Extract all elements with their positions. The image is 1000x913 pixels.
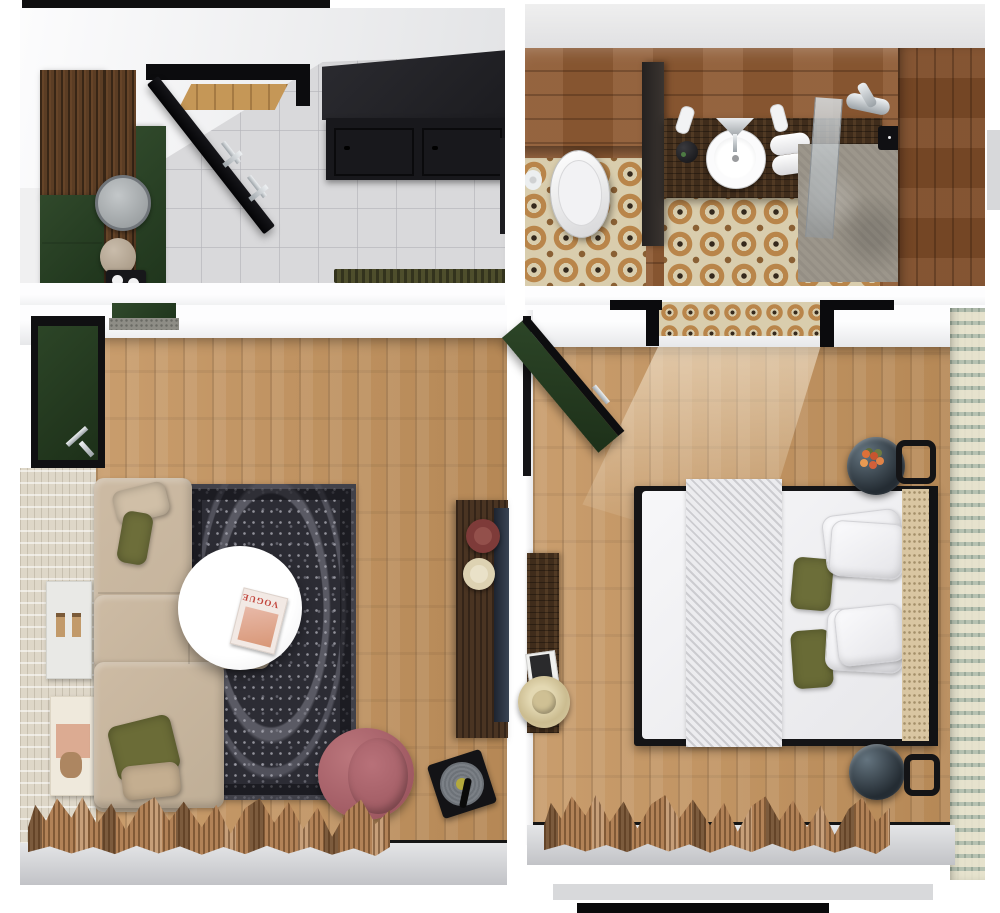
kitchen-room: [0, 0, 510, 313]
headboard-frame-edge: [929, 486, 938, 746]
nightstand-bottom: [849, 744, 905, 800]
art-figure: [56, 613, 65, 637]
partition-wall: [642, 62, 664, 246]
wall-sconce: [896, 440, 936, 484]
bathroom-top-wall: [515, 4, 985, 50]
cabinet-seam: [42, 242, 102, 244]
wall-art-frame: [46, 581, 92, 679]
sink-drain: [732, 155, 739, 162]
entry-doorway-floor: [178, 84, 288, 110]
right-margin-edge: [987, 130, 1000, 210]
white-pillow: [828, 519, 906, 580]
cabinet-door-panel: [422, 128, 502, 176]
sage-wallpaper-wall: [950, 308, 985, 880]
decor-plate-maroon-inner: [474, 527, 492, 545]
cabinet-knob: [432, 146, 438, 150]
cabinet-knob: [344, 146, 350, 150]
entry-wardrobe: [40, 70, 104, 197]
bathroom-doorway-tile: [659, 302, 820, 336]
sofa-seam: [98, 592, 188, 594]
knit-throw: [686, 479, 782, 747]
cane-headboard: [902, 489, 930, 741]
faucet-spout: [733, 134, 737, 152]
bottom-black-edge: [577, 903, 829, 913]
panel-dot: [888, 136, 891, 139]
entry-console-stone-top: [109, 318, 179, 330]
straw-hat-crown: [532, 690, 556, 714]
entry-door-jamb: [296, 64, 310, 106]
black-jar: [676, 141, 698, 163]
wall-sconce: [904, 754, 940, 796]
mauve-armchair-seat: [348, 738, 408, 814]
doormat: [334, 269, 512, 283]
jar-accent-dot: [681, 152, 686, 157]
entry-door-lintel: [146, 64, 308, 80]
toilet-paper-roll: [524, 170, 542, 190]
flower-bouquet: [862, 450, 870, 458]
doorway-frame-jamb: [646, 300, 659, 346]
round-mirror: [95, 175, 151, 231]
lower-wall-band: [553, 884, 933, 900]
window-sill: [20, 843, 507, 885]
cabinet-door-panel: [334, 128, 414, 176]
kitchen-top-black-edge: [22, 0, 330, 8]
art-figure: [72, 613, 81, 637]
doorway-frame-bar: [832, 300, 894, 310]
art-abstract-tan: [60, 752, 82, 778]
decor-plate-cream-inner: [470, 565, 488, 583]
white-pillow: [833, 603, 907, 668]
tan-pillow: [120, 761, 181, 801]
bedroom: [510, 300, 1000, 913]
bathroom-right-wall: [898, 48, 985, 288]
living-room: VOGUE: [0, 300, 510, 913]
bathroom: [510, 0, 1000, 313]
floor-plan-3d-render: VOGUE: [0, 0, 1000, 913]
